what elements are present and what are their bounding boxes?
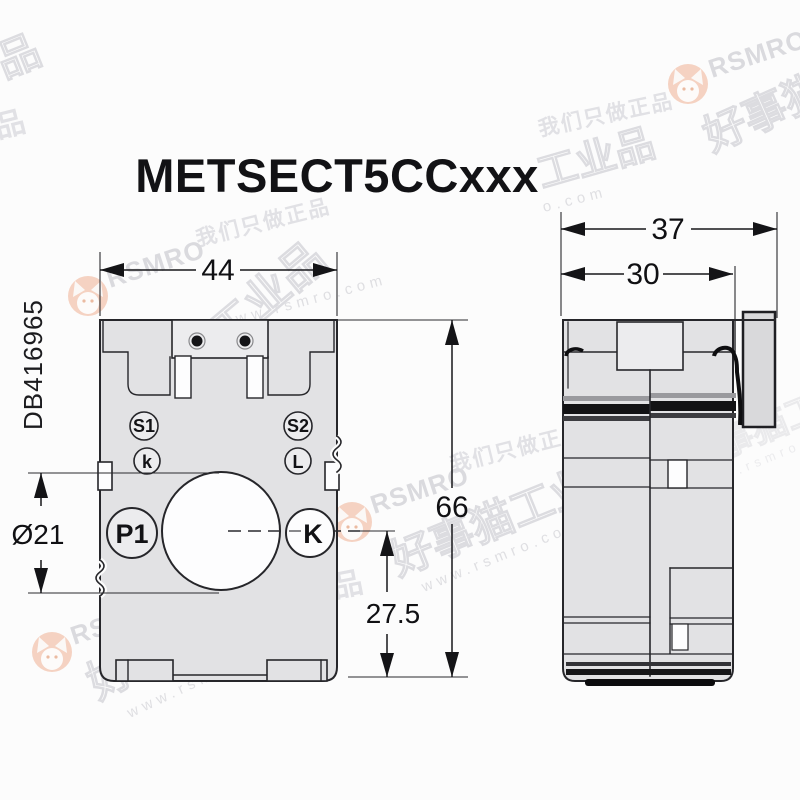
side-body-outline xyxy=(563,320,733,681)
side-small-step xyxy=(672,624,688,650)
arrowhead-down xyxy=(445,652,459,677)
document-code: DB416965 xyxy=(18,299,48,430)
front-slot-left xyxy=(175,356,191,398)
terminal-s2-label: S2 xyxy=(287,416,309,436)
arrowhead-right xyxy=(753,222,777,236)
front-foot-right xyxy=(267,660,327,681)
dim-height-label: 66 xyxy=(435,491,468,524)
dim-axis-height-label: 27.5 xyxy=(366,598,421,629)
arrowhead-up xyxy=(34,473,48,498)
side-top-tab xyxy=(617,322,683,370)
dim-depth-37: 37 xyxy=(561,212,777,318)
terminal-k-label: k xyxy=(142,452,153,472)
side-bottom-bar xyxy=(585,679,715,686)
watermark-brand: RSMRO xyxy=(705,24,800,84)
technical-drawing-page: 品 品 RSMRO 好事猫工业品 我们只做正品 工业品 o.com RSMRO … xyxy=(0,0,800,800)
screw-hole-left xyxy=(192,336,203,347)
arrowhead-down xyxy=(34,568,48,593)
arrowhead-left xyxy=(561,222,585,236)
dim-depth-overall-label: 37 xyxy=(651,213,684,246)
product-title: METSECT5CCxxx xyxy=(135,149,539,202)
arrowhead-up xyxy=(445,320,459,345)
watermark-slogan: 我们只做正品 xyxy=(193,194,333,251)
side-bottom-band xyxy=(566,662,731,666)
primary-conductor-hole xyxy=(162,472,280,590)
front-clip-left xyxy=(98,462,112,490)
front-slot-right xyxy=(247,356,263,398)
terminal-s1-label: S1 xyxy=(133,416,155,436)
primary-p1-label: P1 xyxy=(115,519,148,549)
arrowhead-down xyxy=(380,653,394,677)
watermark-fragment-char: 品 xyxy=(0,27,48,88)
terminal-l-label: L xyxy=(293,452,304,472)
dimension-drawing-canvas: 品 品 RSMRO 好事猫工业品 我们只做正品 工业品 o.com RSMRO … xyxy=(0,0,800,800)
dim-depth-body-label: 30 xyxy=(626,258,659,291)
side-window xyxy=(668,460,687,488)
dim-width-label: 44 xyxy=(201,254,234,287)
screw-hole-right xyxy=(240,336,251,347)
side-bottom-band xyxy=(566,669,731,675)
side-release-flap xyxy=(743,312,775,427)
front-top-tab xyxy=(172,320,268,358)
dim-hole-label: Ø21 xyxy=(12,519,65,550)
arrowhead-left xyxy=(561,267,585,281)
arrowhead-right xyxy=(709,267,733,281)
front-clip-right xyxy=(325,462,339,490)
watermark-tile-top-right: RSMRO 好事猫工业品 我们只做正品 工业品 o.com xyxy=(532,12,800,216)
primary-k-label: K xyxy=(303,519,323,549)
front-foot-left xyxy=(116,660,173,681)
watermark-fragment-char: 品 xyxy=(0,105,31,145)
watermark-brand: RSMRO xyxy=(103,234,209,294)
